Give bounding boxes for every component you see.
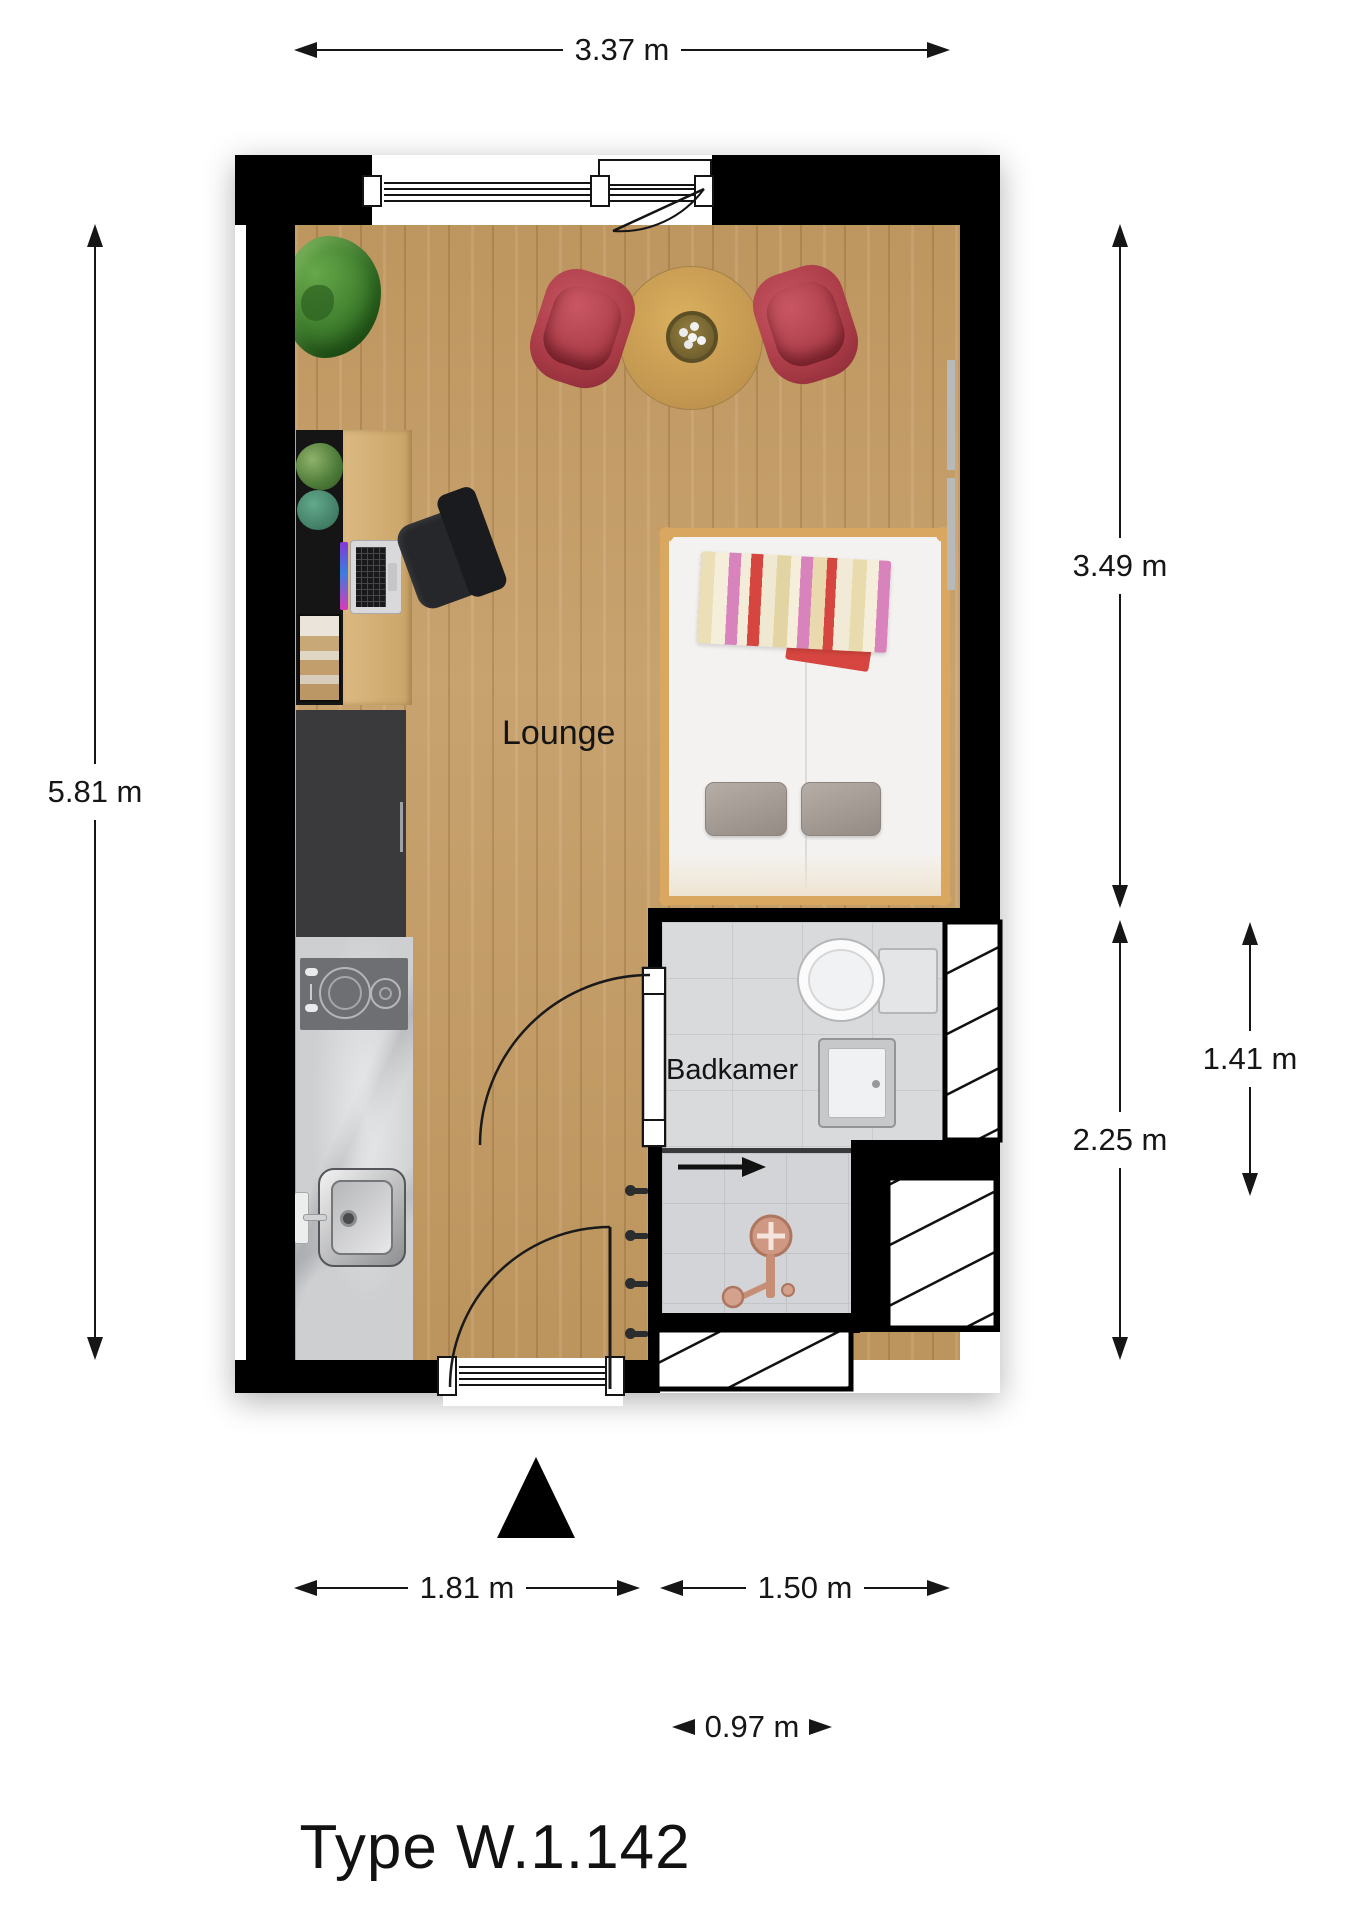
- dimension-label: 5.81 m: [48, 764, 143, 820]
- coat-hook-icon: [629, 1188, 648, 1194]
- cooktop-knob: [305, 1004, 318, 1012]
- bed-post: [659, 527, 674, 542]
- dimension-label: 1.81 m: [408, 1570, 527, 1606]
- arrow-right-icon: [927, 1580, 950, 1596]
- coat-hook-icon: [629, 1233, 648, 1239]
- door-post: [437, 1356, 457, 1396]
- pillow-right: [801, 782, 881, 836]
- kitchen-faucet: [294, 1192, 324, 1244]
- wall-bathroom-top: [648, 908, 1000, 922]
- toilet-tank: [878, 948, 938, 1014]
- stool: [297, 490, 339, 530]
- dimension-label: 3.37 m: [563, 32, 682, 68]
- arrow-right-icon: [927, 42, 950, 58]
- arrow-left-icon: [294, 42, 317, 58]
- arrow-up-icon: [1242, 922, 1258, 945]
- bathroom-sink: [818, 1038, 896, 1128]
- cooktop: [300, 958, 408, 1030]
- laptop-keyboard: [356, 547, 386, 607]
- arrow-right-icon: [809, 1719, 832, 1735]
- door-post: [605, 1356, 625, 1396]
- wall-left: [246, 155, 295, 1393]
- burner-large: [319, 967, 371, 1019]
- arrow-left-icon: [660, 1580, 683, 1596]
- bathroom-label: Badkamer: [666, 1054, 798, 1087]
- wall-bathroom-left-upper: [648, 922, 662, 970]
- arrow-left-icon: [294, 1580, 317, 1596]
- dimension-top-width: 3.37 m: [294, 28, 950, 72]
- small-plant: [296, 443, 343, 490]
- dining-table: [619, 266, 763, 410]
- kitchen-sink: [318, 1168, 406, 1267]
- cooktop-divider: [310, 984, 312, 1000]
- cooktop-knob: [305, 968, 318, 976]
- entrance-marker-icon: [497, 1457, 575, 1538]
- shower-tile-floor: [662, 1153, 851, 1313]
- dimension-label: 1.50 m: [746, 1570, 865, 1606]
- dimension-bottom-inner-width: 0.97 m: [652, 1705, 852, 1749]
- table-bowl: [666, 311, 718, 363]
- laptop-trackpad: [388, 563, 397, 592]
- mattress-foot-shading: [669, 854, 941, 896]
- arrow-up-icon: [1112, 224, 1128, 247]
- radiator-strip: [947, 478, 955, 590]
- window-post: [694, 175, 714, 207]
- arrow-up-icon: [1112, 920, 1128, 943]
- dimension-right-upper-height: 3.49 m: [1070, 224, 1170, 908]
- entrance-threshold-lines: [459, 1366, 607, 1388]
- dimension-left-height: 5.81 m: [45, 224, 145, 1360]
- arrow-down-icon: [87, 1337, 103, 1360]
- arrow-down-icon: [1242, 1173, 1258, 1196]
- wall-shower-bottom: [648, 1313, 860, 1333]
- laptop-screen: [340, 542, 348, 610]
- wall-right: [960, 225, 1000, 922]
- dimension-label: 3.49 m: [1073, 538, 1168, 594]
- shelf-steps: [298, 614, 341, 702]
- bathroom-sink-drain: [872, 1080, 880, 1088]
- dimension-right-lower-height: 2.25 m: [1070, 920, 1170, 1360]
- toilet: [797, 938, 885, 1022]
- arrow-down-icon: [1112, 1337, 1128, 1360]
- lounge-label: Lounge: [502, 714, 615, 753]
- sink-drain: [340, 1210, 357, 1227]
- striped-blanket: [697, 551, 892, 653]
- wardrobe: [296, 710, 406, 937]
- dimension-bottom-right-width: 1.50 m: [660, 1566, 950, 1610]
- laptop: [350, 540, 402, 614]
- faucet-spout: [303, 1214, 327, 1221]
- coat-hook-icon: [629, 1331, 648, 1337]
- arrow-right-icon: [617, 1580, 640, 1596]
- dimension-bottom-left-width: 1.81 m: [294, 1566, 640, 1610]
- window-post: [590, 175, 610, 207]
- radiator-strip: [947, 360, 955, 470]
- arrow-left-icon: [672, 1719, 695, 1735]
- dimension-right-inner-height: 1.41 m: [1200, 922, 1300, 1196]
- window-post: [362, 175, 382, 207]
- wall-bathroom-right: [851, 1140, 1000, 1332]
- dimension-label: 0.97 m: [695, 1709, 810, 1745]
- pillow-left: [705, 782, 787, 836]
- floor-plan-page: Lounge Badkamer 3.37 m 5.81 m 3.49 m 2.2…: [0, 0, 1358, 1920]
- dimension-label: 1.41 m: [1203, 1031, 1298, 1087]
- arrow-up-icon: [87, 224, 103, 247]
- coat-hook-icon: [629, 1281, 648, 1287]
- arrow-down-icon: [1112, 885, 1128, 908]
- dimension-label: 2.25 m: [1073, 1112, 1168, 1168]
- page-title: Type W.1.142: [235, 1812, 755, 1883]
- burner-small: [370, 978, 401, 1009]
